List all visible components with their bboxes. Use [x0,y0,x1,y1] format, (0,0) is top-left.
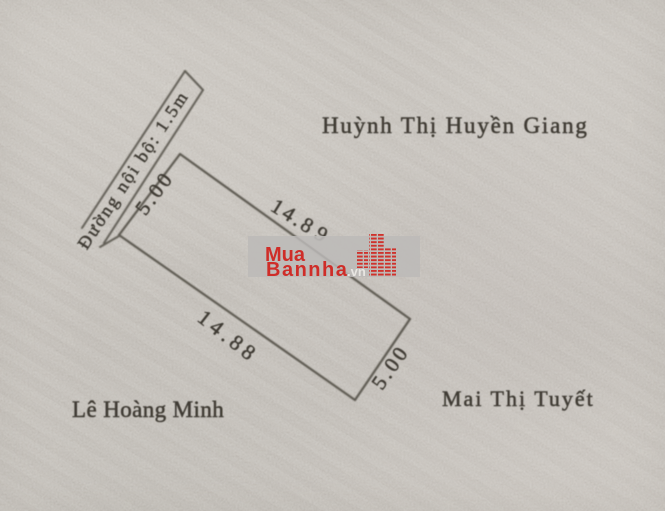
svg-text:Lê Hoàng Minh: Lê Hoàng Minh [72,397,224,422]
svg-text:.vn: .vn [347,264,366,279]
svg-text:Huỳnh Thị Huyền Giang: Huỳnh Thị Huyền Giang [322,113,589,138]
svg-text:Bannha: Bannha [266,259,348,281]
svg-text:Mai Thị Tuyết: Mai Thị Tuyết [442,386,595,411]
